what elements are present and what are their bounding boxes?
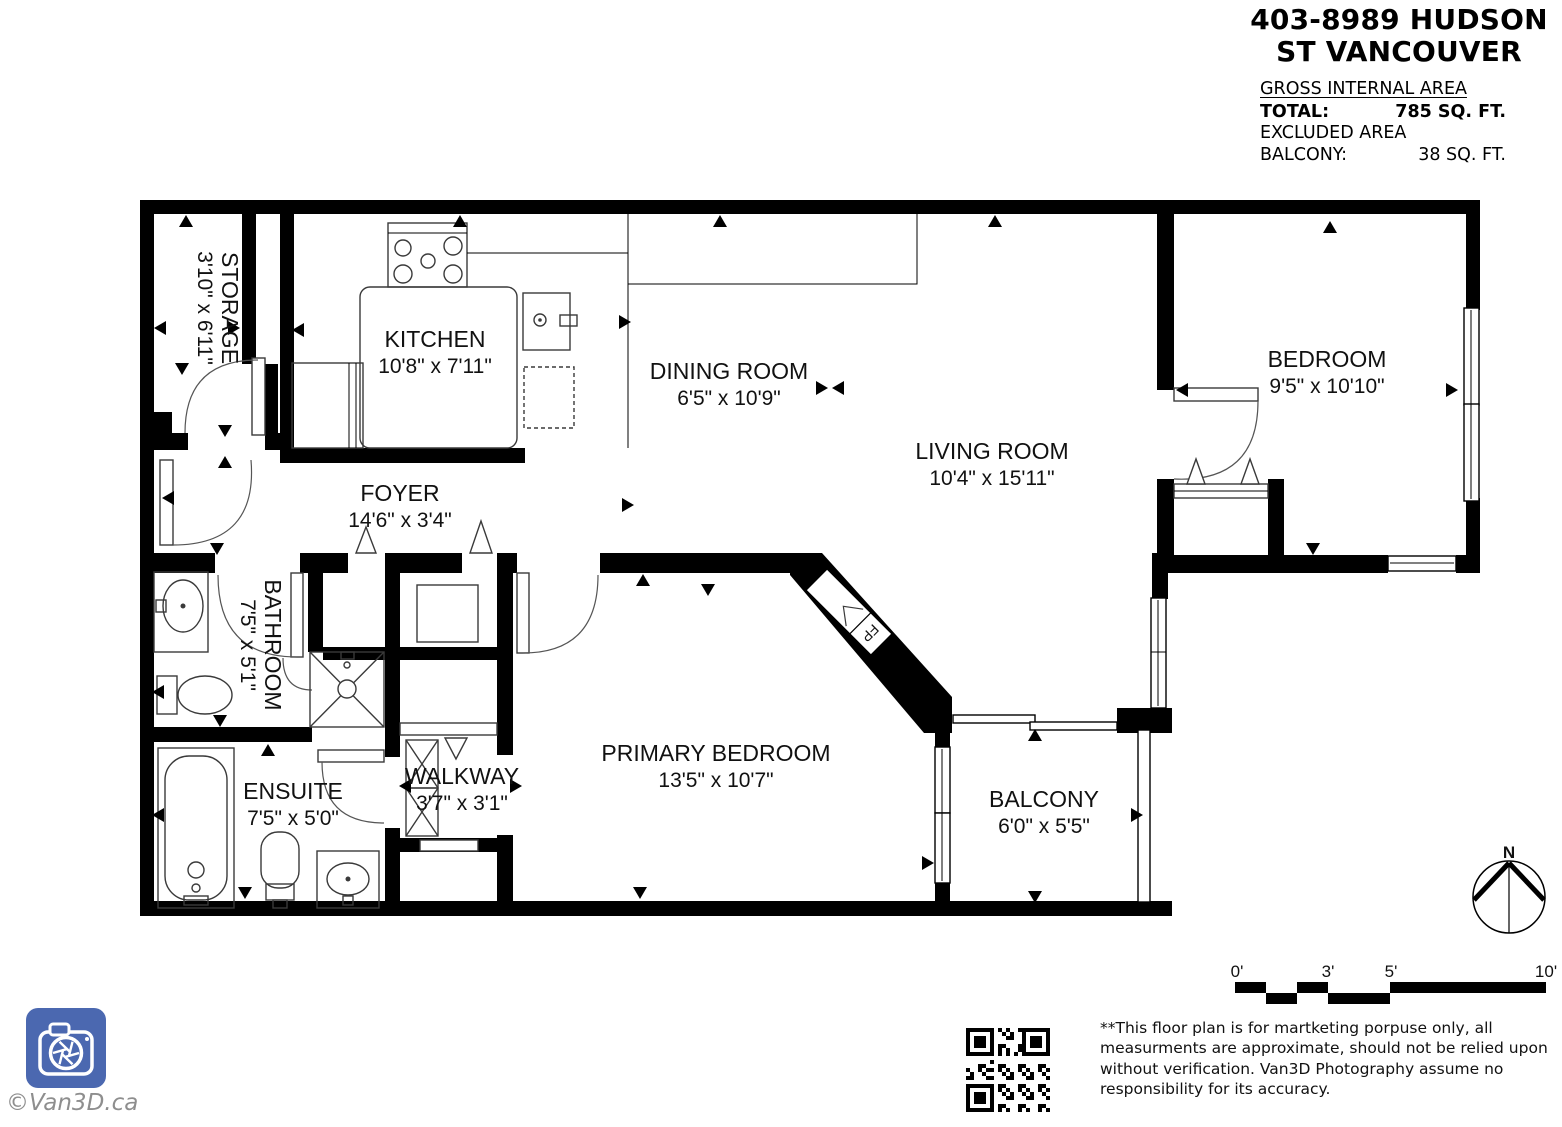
svg-text:BEDROOM: BEDROOM (1268, 346, 1387, 372)
hanger-icon (1241, 459, 1259, 484)
balcony-label: BALCONY: (1260, 145, 1347, 166)
floor-plan-page: FP KITCHEN 10'8" x 7'11" DINING ROOM 6'5… (0, 0, 1562, 1127)
svg-text:6'0" x 5'5": 6'0" x 5'5" (998, 815, 1090, 838)
room-label-storage: STORAGE 3'10" x 6'11" (193, 251, 243, 365)
balcony-sliding-door (953, 715, 1035, 723)
scale-label-10: 10' (1535, 962, 1557, 981)
floor-plan-drawing: FP KITCHEN 10'8" x 7'11" DINING ROOM 6'5… (0, 0, 1562, 1127)
room-label-foyer: FOYER 14'6" x 3'4" (348, 480, 452, 532)
svg-text:9'5" x 10'10": 9'5" x 10'10" (1269, 375, 1384, 398)
svg-text:PRIMARY BEDROOM: PRIMARY BEDROOM (601, 740, 830, 766)
van3d-logo (26, 1008, 106, 1088)
fridge-icon (292, 363, 363, 448)
area-row-excluded: EXCLUDED AREA (1260, 123, 1506, 144)
disclaimer-text: **This floor plan is for martketing porp… (1100, 1018, 1552, 1100)
room-label-kitchen: KITCHEN 10'8" x 7'11" (378, 326, 492, 378)
scale-label-0: 0' (1231, 962, 1244, 981)
svg-text:BATHROOM: BATHROOM (260, 579, 286, 710)
svg-text:14'6" x 3'4": 14'6" x 3'4" (348, 509, 452, 532)
lower-closet-door (420, 840, 478, 851)
svg-text:LIVING ROOM: LIVING ROOM (915, 438, 1068, 464)
svg-text:WALKWAY: WALKWAY (405, 763, 519, 789)
room-label-bathroom: BATHROOM 7'5" x 5'1" (236, 579, 286, 710)
storage-door (252, 358, 265, 435)
hanger-icon (445, 738, 467, 759)
area-summary: GROSS INTERNAL AREA TOTAL: 785 SQ. FT. E… (1260, 79, 1506, 166)
svg-text:ENSUITE: ENSUITE (243, 778, 343, 804)
compass-north-label: N (1503, 843, 1515, 862)
room-label-ensuite: ENSUITE 7'5" x 5'0" (243, 778, 343, 830)
svg-text:STORAGE: STORAGE (217, 252, 243, 364)
watermark: ©Van3D.ca (6, 1090, 138, 1116)
room-label-primary-bedroom: PRIMARY BEDROOM 13'5" x 10'7" (601, 740, 830, 792)
primary-bedroom-door (517, 573, 529, 653)
qr-code (966, 1028, 1050, 1112)
svg-text:13'5" x 10'7": 13'5" x 10'7" (658, 769, 773, 792)
area-row-balcony: BALCONY: 38 SQ. FT. (1260, 145, 1506, 166)
svg-text:KITCHEN: KITCHEN (385, 326, 486, 352)
total-label: TOTAL: (1260, 102, 1329, 123)
area-row-total: TOTAL: 785 SQ. FT. (1260, 102, 1506, 123)
shower-door-arc (283, 658, 312, 690)
walls (140, 200, 1480, 916)
scale-label-3: 3' (1322, 962, 1335, 981)
toilet-icon (178, 676, 232, 714)
compass-rose: N (1473, 843, 1545, 933)
room-label-bedroom: BEDROOM 9'5" x 10'10" (1268, 346, 1387, 398)
walkway-closet-door (400, 723, 497, 735)
closet-shelf (417, 585, 478, 642)
ensuite-toilet (261, 832, 299, 888)
svg-text:3'10" x 6'11": 3'10" x 6'11" (193, 251, 216, 365)
scale-label-5: 5' (1385, 962, 1398, 981)
ensuite-door (318, 750, 384, 762)
svg-text:10'4" x 15'11": 10'4" x 15'11" (929, 467, 1054, 490)
svg-text:3'7" x 3'1": 3'7" x 3'1" (416, 792, 508, 815)
svg-text:FOYER: FOYER (360, 480, 439, 506)
total-value: 785 SQ. FT. (1395, 102, 1506, 123)
svg-text:BALCONY: BALCONY (989, 786, 1099, 812)
balcony-value: 38 SQ. FT. (1418, 145, 1506, 166)
hanger-icon (470, 521, 492, 553)
svg-text:10'8" x 7'11": 10'8" x 7'11" (378, 355, 492, 378)
room-label-dining: DINING ROOM 6'5" x 10'9" (650, 358, 808, 410)
area-summary-heading: GROSS INTERNAL AREA (1260, 79, 1506, 99)
svg-text:7'5" x 5'1": 7'5" x 5'1" (236, 599, 259, 691)
title-line-2: ST VANCOUVER (1248, 36, 1550, 68)
room-label-living: LIVING ROOM 10'4" x 15'11" (915, 438, 1068, 490)
hanger-icon (1187, 459, 1205, 484)
excluded-label: EXCLUDED AREA (1260, 123, 1406, 144)
room-label-walkway: WALKWAY 3'7" x 3'1" (405, 763, 519, 815)
scale-bar: 0' 3' 5' 10' (1231, 962, 1557, 1004)
svg-text:7'5" x 5'0": 7'5" x 5'0" (247, 807, 339, 830)
dishwasher-icon (524, 367, 574, 428)
svg-text:DINING ROOM: DINING ROOM (650, 358, 808, 384)
bathroom-door (291, 573, 303, 657)
room-label-balcony: BALCONY 6'0" x 5'5" (989, 786, 1099, 838)
title-line-1: 403-8989 HUDSON (1248, 4, 1550, 36)
svg-text:6'5" x 10'9": 6'5" x 10'9" (677, 387, 781, 410)
page-title: 403-8989 HUDSON ST VANCOUVER (1248, 4, 1550, 67)
